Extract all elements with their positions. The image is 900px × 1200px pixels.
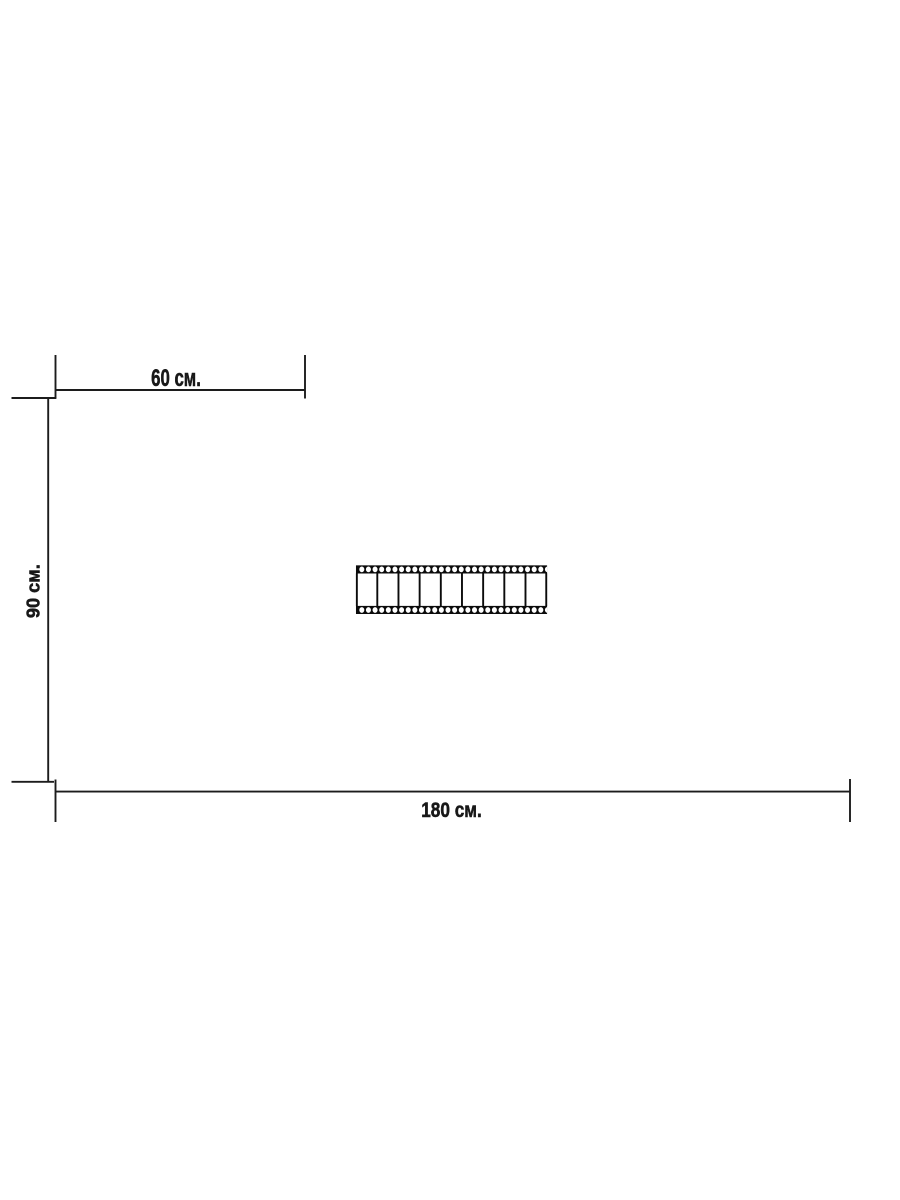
svg-text:60 см.: 60 см. [151,365,201,392]
svg-text:180 см.: 180 см. [421,800,482,823]
svg-text:90 см.: 90 см. [24,564,44,618]
